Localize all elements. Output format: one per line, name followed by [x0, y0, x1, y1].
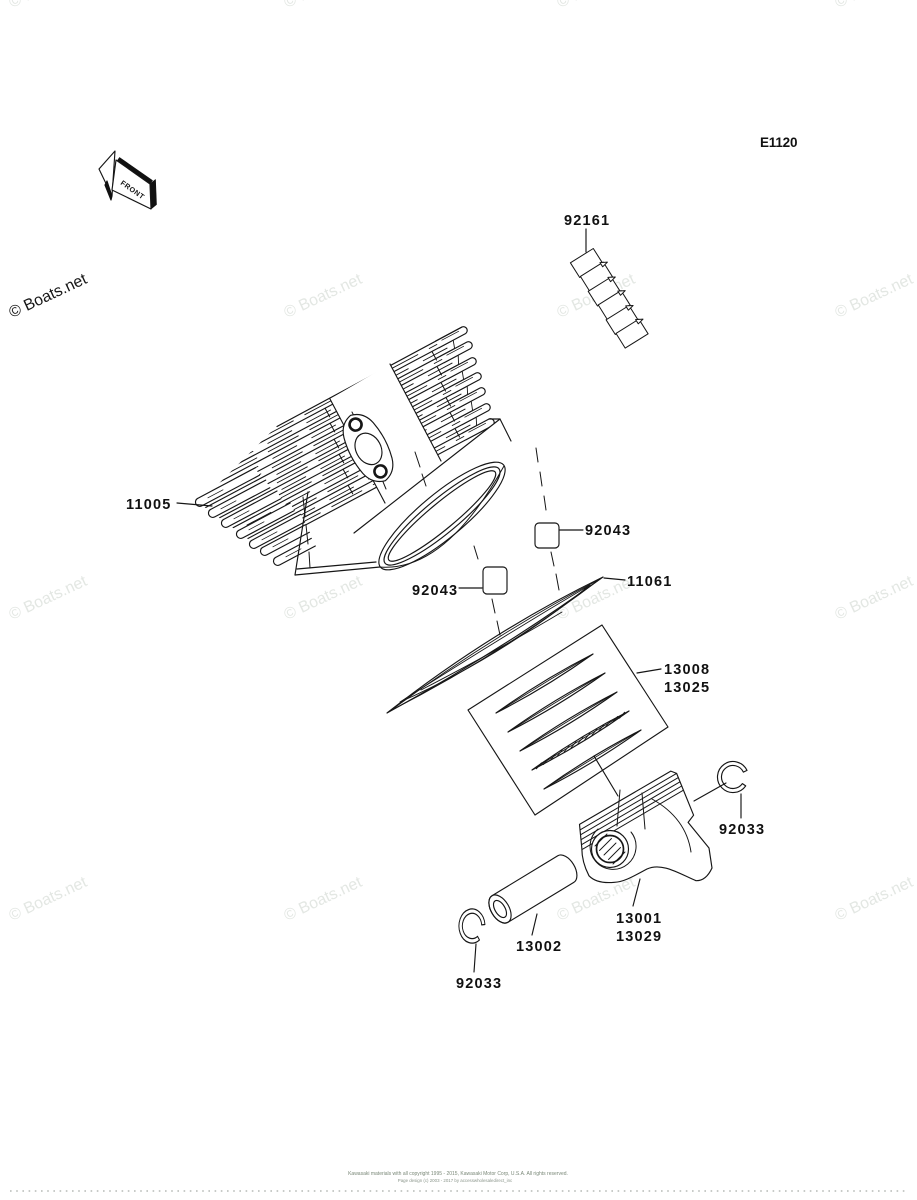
- svg-text:92033: 92033: [456, 976, 502, 992]
- svg-text:11061: 11061: [627, 574, 673, 590]
- svg-text:11005: 11005: [126, 497, 172, 513]
- svg-text:13001: 13001: [616, 911, 662, 927]
- svg-text:13008: 13008: [664, 662, 710, 678]
- svg-text:13002: 13002: [516, 939, 562, 955]
- svg-text:13029: 13029: [616, 929, 662, 945]
- svg-text:92043: 92043: [585, 523, 631, 539]
- svg-text:13025: 13025: [664, 680, 710, 696]
- svg-text:92161: 92161: [564, 213, 610, 229]
- svg-text:Kawasaki materials with all co: Kawasaki materials with all copyright 19…: [348, 1171, 568, 1177]
- svg-text:E1120: E1120: [760, 135, 797, 150]
- svg-text:Page design (c) 2003 - 2017 by: Page design (c) 2003 - 2017 by accesswho…: [398, 1178, 513, 1183]
- svg-text:92033: 92033: [719, 822, 765, 838]
- svg-text:92043: 92043: [412, 583, 458, 599]
